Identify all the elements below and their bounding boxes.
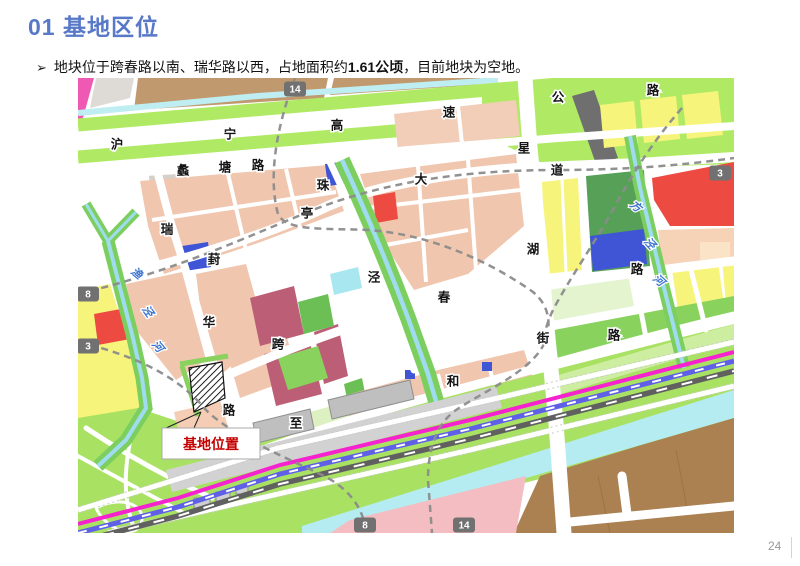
- metro-badge-number: 8: [85, 290, 91, 301]
- road-label-char: 星: [518, 142, 531, 156]
- road-label-char: 公: [552, 91, 565, 105]
- annotation-label: 基地位置: [183, 436, 239, 452]
- road-label-char: 珠: [317, 178, 330, 193]
- road-label-char: 葑: [208, 252, 221, 267]
- road-label-char: 亭: [301, 206, 314, 221]
- bullet-arrow-icon: ➢: [36, 60, 47, 75]
- page-title: 01 基地区位: [28, 8, 159, 42]
- road-label-char: 高: [331, 118, 344, 133]
- road-label-char: 至: [290, 417, 303, 431]
- land-use-map: 沪宁高速公路蠡塘路葑亭大道珠泾星湖街跨春路瑞华路至和路渔泾河方泾河 148338…: [78, 78, 734, 533]
- road-label-char: 和: [446, 374, 460, 389]
- road-label-char: 路: [223, 403, 236, 418]
- bullet-text-bold: 1.61公顷: [348, 59, 403, 75]
- metro-badge-number: 14: [289, 85, 301, 96]
- map-canvas: 沪宁高速公路蠡塘路葑亭大道珠泾星湖街跨春路瑞华路至和路渔泾河方泾河 148338…: [78, 78, 734, 533]
- metro-badge-number: 3: [85, 342, 91, 353]
- road-label-char: 塘: [219, 160, 232, 175]
- road-label-char: 路: [252, 158, 265, 173]
- road-label-char: 湖: [527, 242, 540, 257]
- road-label-char: 蠡: [177, 163, 190, 178]
- metro-badge-number: 8: [362, 521, 368, 532]
- road-label-char: 泾: [368, 271, 381, 285]
- road-label-char: 沪: [111, 137, 124, 152]
- road-label-char: 速: [443, 105, 456, 120]
- road-label-char: 路: [631, 262, 644, 277]
- road-label-char: 大: [415, 172, 428, 187]
- metro-badge-number: 3: [717, 169, 723, 180]
- road-label-char: 春: [437, 290, 451, 305]
- road-label-char: 宁: [224, 127, 237, 142]
- slide: 01 基地区位 ➢地块位于跨春路以南、瑞华路以西，占地面积约1.61公顷，目前地…: [0, 0, 800, 566]
- bullet-text-pre: 地块位于跨春路以南、瑞华路以西，占地面积约: [54, 59, 348, 75]
- bullet-text-post: ，目前地块为空地。: [403, 59, 529, 75]
- road-label-char: 路: [608, 328, 621, 343]
- road-label-char: 路: [647, 83, 660, 98]
- road-label-char: 跨: [272, 338, 285, 352]
- road-label-char: 道: [551, 163, 564, 178]
- bullet-line: ➢地块位于跨春路以南、瑞华路以西，占地面积约1.61公顷，目前地块为空地。: [36, 57, 529, 77]
- road-label-char: 街: [536, 331, 550, 346]
- page-number: 24: [768, 539, 781, 553]
- metro-badge-number: 14: [458, 521, 470, 532]
- road-label-char: 华: [203, 315, 216, 330]
- footer-tick: [791, 537, 792, 558]
- road-label-char: 瑞: [161, 222, 174, 237]
